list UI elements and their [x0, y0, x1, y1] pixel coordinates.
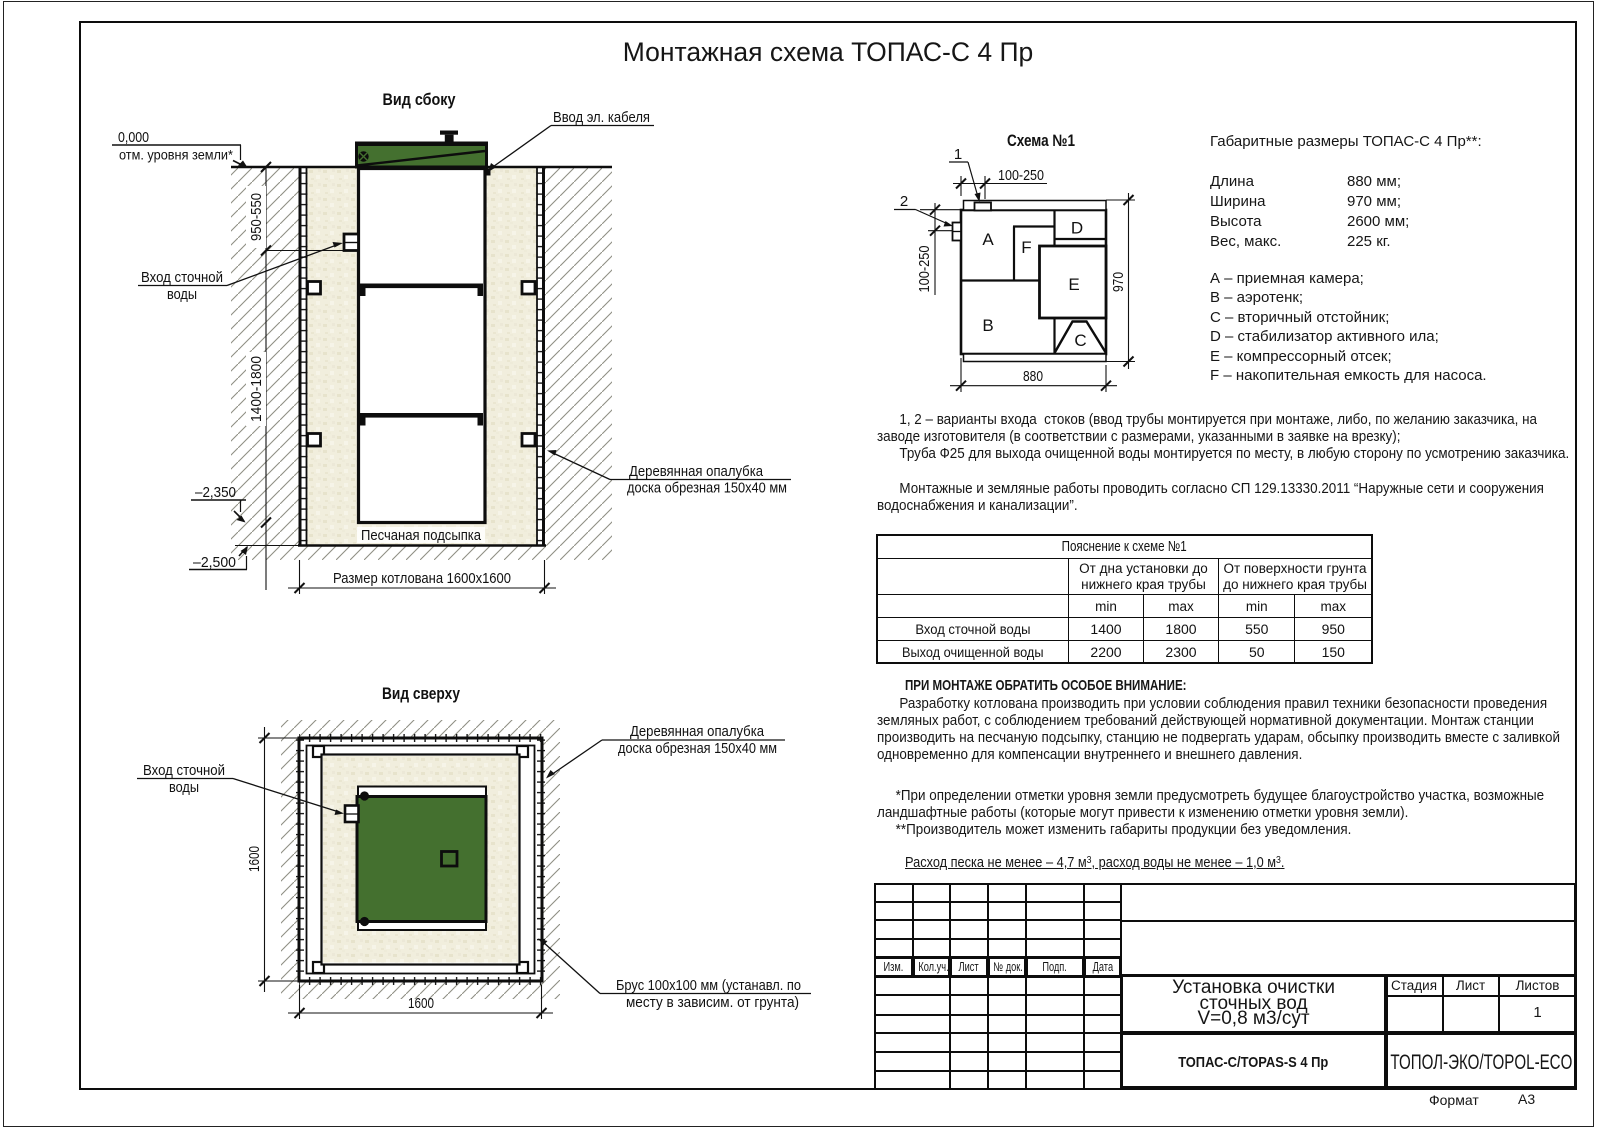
svg-text:Вид сверху: Вид сверху [382, 685, 461, 703]
svg-text:доска обрезная 150х40 мм: доска обрезная 150х40 мм [618, 741, 777, 757]
svg-text:Схема №1: Схема №1 [1007, 132, 1075, 150]
svg-text:D: D [1071, 219, 1083, 238]
svg-text:1: 1 [954, 146, 962, 163]
svg-text:Песчаная подсыпка: Песчаная подсыпка [361, 528, 482, 544]
svg-text:доска обрезная 150х40 мм: доска обрезная 150х40 мм [627, 481, 787, 497]
svg-text:1600: 1600 [246, 846, 263, 872]
svg-text:–2,350: –2,350 [195, 484, 236, 501]
svg-text:C: C [1074, 331, 1086, 350]
svg-text:E: E [1068, 275, 1079, 294]
svg-text:–2,500: –2,500 [193, 554, 236, 571]
svg-text:A: A [982, 230, 994, 249]
svg-text:950-550: 950-550 [249, 193, 265, 241]
svg-text:0,000: 0,000 [118, 129, 149, 146]
svg-text:отм. уровня земли*: отм. уровня земли* [119, 147, 233, 163]
svg-text:2: 2 [900, 193, 908, 210]
svg-text:880: 880 [1023, 368, 1043, 385]
svg-text:Вход сточной: Вход сточной [141, 270, 223, 286]
svg-text:Вид сбоку: Вид сбоку [383, 91, 457, 109]
svg-text:100-250: 100-250 [998, 168, 1044, 184]
svg-text:Размер котлована 1600х1600: Размер котлована 1600х1600 [333, 570, 511, 587]
svg-text:Деревянная опалубка: Деревянная опалубка [629, 464, 764, 480]
svg-text:100-250: 100-250 [917, 246, 933, 293]
svg-text:воды: воды [167, 287, 197, 303]
svg-text:970: 970 [1110, 272, 1127, 292]
svg-text:Деревянная опалубка: Деревянная опалубка [630, 724, 765, 740]
svg-text:Брус 100х100 мм (устанавл. по: Брус 100х100 мм (устанавл. по [616, 978, 801, 994]
svg-text:Вход сточной: Вход сточной [143, 763, 225, 779]
svg-text:F: F [1021, 238, 1031, 257]
svg-text:воды: воды [169, 780, 199, 796]
svg-text:1600: 1600 [408, 995, 434, 1012]
svg-text:месту в зависим. от грунта): месту в зависим. от грунта) [626, 995, 799, 1011]
svg-text:Ввод эл. кабеля: Ввод эл. кабеля [553, 110, 650, 126]
svg-text:B: B [982, 316, 993, 335]
svg-text:1400-1800: 1400-1800 [249, 356, 265, 422]
